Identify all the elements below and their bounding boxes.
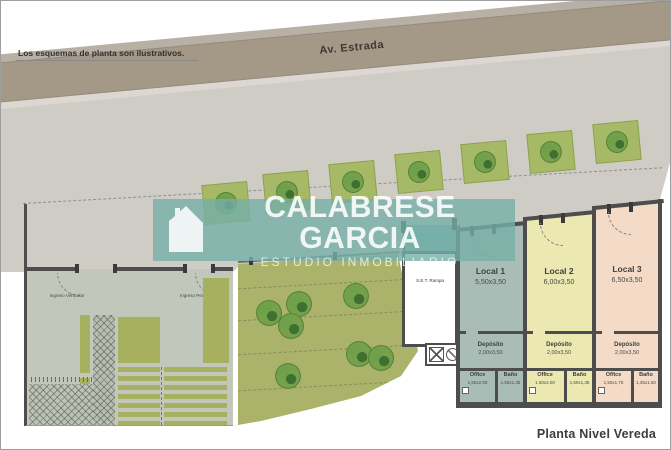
- watermark-subtitle: ESTUDIO INMOBILIARIO: [205, 255, 515, 269]
- local-3-office-dims: 1,50x1,75: [596, 380, 631, 385]
- street-label: Av. Estrada: [291, 36, 412, 60]
- tree-icon: [539, 140, 563, 164]
- door-post: [629, 202, 633, 212]
- planter-bed: [203, 278, 229, 363]
- local-2-bano-label: Baño: [567, 372, 592, 378]
- contour-line: [228, 379, 438, 392]
- wall: [596, 368, 658, 371]
- local-3-name: Local 3: [595, 265, 659, 275]
- fixture-box: [529, 387, 536, 394]
- wall: [113, 267, 187, 271]
- ramp-hatch: [93, 315, 115, 426]
- local-2-office-label: Office: [527, 372, 563, 378]
- door-post: [183, 264, 187, 273]
- tree-icon: [275, 363, 301, 389]
- local-1-office-label: Office: [460, 372, 495, 378]
- wall: [26, 267, 79, 271]
- door-post: [113, 264, 117, 273]
- door-gap: [466, 331, 478, 334]
- watermark-title: CALABRESE GARCIA: [210, 191, 511, 253]
- tree-icon: [407, 160, 431, 184]
- set-room-label: S.E.T. Rampa: [405, 278, 455, 283]
- tree-icon: [368, 345, 394, 371]
- local-1-bano-dims: 1,50x1,35: [498, 380, 523, 385]
- stair-steps: [118, 367, 160, 426]
- plaza-edge-line: [26, 425, 233, 426]
- tree-icon: [278, 313, 304, 339]
- local-2-bano-dims: 1,50x1,35: [567, 380, 592, 385]
- tree-icon: [473, 150, 497, 174]
- fixture-box: [462, 387, 469, 394]
- planter: [460, 140, 509, 184]
- ramp-hatch: [29, 384, 93, 426]
- door-gap: [533, 331, 545, 334]
- local-1-office-dims: 1,50x2,00: [460, 380, 495, 385]
- plan-title: Planta Nivel Vereda: [537, 427, 656, 441]
- stair-steps: [164, 367, 227, 426]
- planter: [526, 130, 575, 174]
- local-2-deposito-dims: 2,00x3,50: [526, 350, 592, 356]
- planter-bed: [80, 315, 90, 373]
- wall: [527, 368, 592, 371]
- watermark: CALABRESE GARCIA ESTUDIO INMOBILIARIO: [153, 199, 515, 261]
- local-3-office-label: Office: [596, 372, 631, 378]
- watermark-logo-icon: [167, 203, 205, 258]
- local-3-deposito-label: Depósito: [595, 342, 659, 349]
- planter: [592, 120, 641, 164]
- planter: [394, 150, 443, 194]
- local-3-bano-label: Baño: [634, 372, 658, 378]
- tree-icon: [605, 130, 629, 154]
- curb-ticks: [31, 377, 93, 382]
- local-1-dims: 5,50x3,50: [458, 279, 523, 287]
- local-3-deposito-dims: 2,00x3,50: [595, 350, 659, 356]
- door-post: [561, 213, 565, 223]
- local-1-deposito-label: Depósito: [458, 342, 523, 349]
- planter-bed: [118, 317, 160, 363]
- local-2-name: Local 2: [526, 267, 592, 277]
- lawn: [238, 253, 419, 428]
- tree-icon: [343, 283, 369, 309]
- vehicular-entrance-label: Ingreso Vehicular: [31, 293, 103, 298]
- local-3-bano-dims: 1,35x1,50: [634, 380, 658, 385]
- door-post: [75, 264, 79, 273]
- stair-guide-line: [161, 367, 162, 425]
- wall: [24, 204, 27, 426]
- door-gap: [602, 331, 614, 334]
- local-3-dims: 6,50x3,50: [595, 277, 659, 285]
- wall: [658, 199, 662, 408]
- local-2-deposito-label: Depósito: [526, 342, 592, 349]
- floorplan-canvas: Av. Estrada Ingreso Vehicular Ingreso Pe…: [0, 0, 671, 450]
- disclaimer: Los esquemas de planta son ilustrativos.: [16, 48, 198, 61]
- wall: [460, 368, 523, 371]
- transformer-x-icon: [429, 347, 444, 362]
- fixture-box: [598, 387, 605, 394]
- local-1-bano-label: Baño: [498, 372, 523, 378]
- local-2-office-dims: 1,50x2,00: [527, 380, 563, 385]
- local-2-dims: 6,00x3,50: [526, 279, 592, 287]
- local-1-deposito-dims: 2,00x3,50: [458, 350, 523, 356]
